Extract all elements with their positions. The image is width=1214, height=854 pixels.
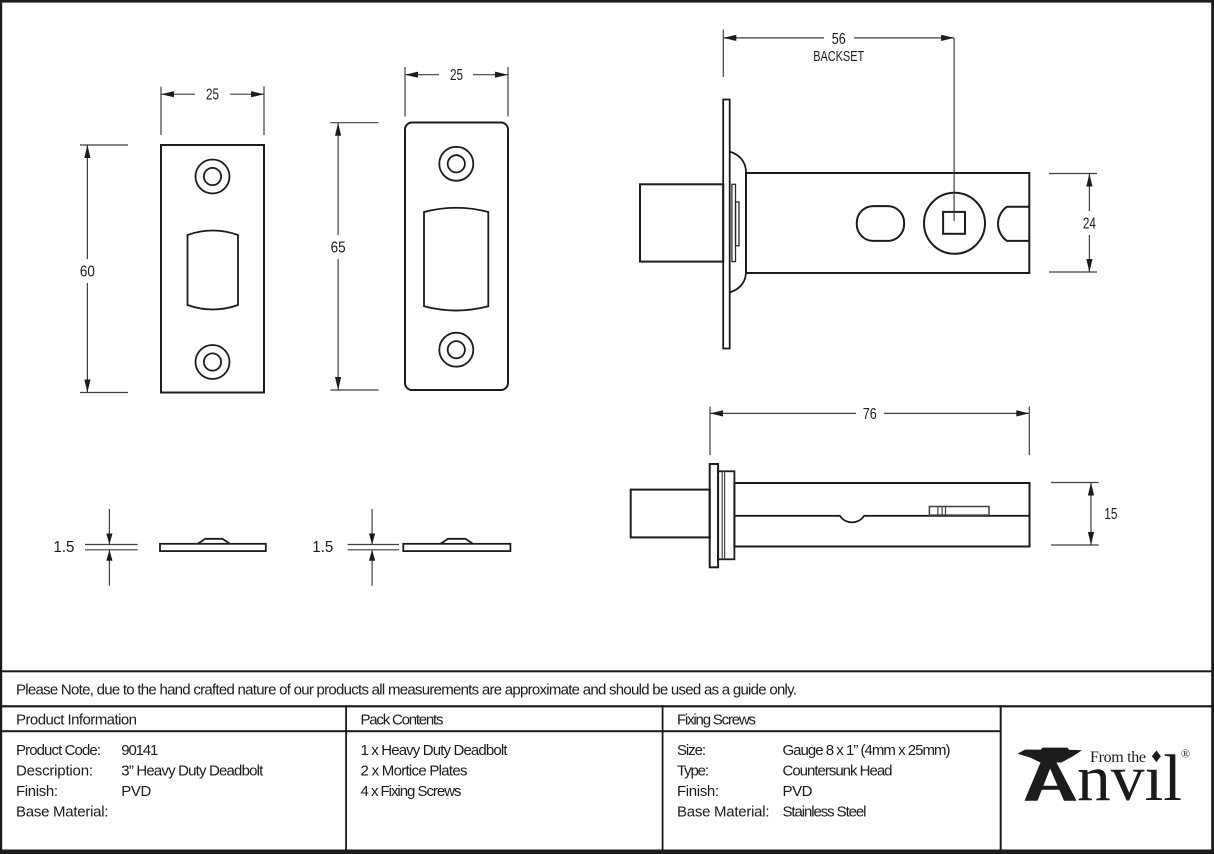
svg-text:25: 25 [206, 87, 219, 104]
svg-text:1.5: 1.5 [53, 539, 74, 556]
svg-text:1.5: 1.5 [312, 539, 333, 556]
svg-text:PVD: PVD [121, 783, 151, 800]
svg-text:Product Code:: Product Code: [16, 742, 101, 759]
svg-text:Fixing Screws: Fixing Screws [677, 712, 756, 729]
svg-text:Stainless Steel: Stainless Steel [783, 803, 867, 820]
svg-text:56: 56 [832, 31, 846, 48]
svg-text:BACKSET: BACKSET [813, 48, 864, 65]
svg-text:1 x Heavy Duty Deadbolt: 1 x Heavy Duty Deadbolt [361, 742, 509, 759]
svg-text:Base Material:: Base Material: [677, 803, 770, 820]
svg-text:4 x Fixing Screws: 4 x Fixing Screws [361, 783, 462, 800]
svg-text:90141: 90141 [121, 742, 158, 759]
svg-text:60: 60 [80, 263, 95, 280]
svg-text:15: 15 [1104, 506, 1117, 523]
svg-text:Base Material:: Base Material: [16, 803, 109, 820]
svg-text:3” Heavy Duty Deadbolt: 3” Heavy Duty Deadbolt [121, 763, 264, 780]
svg-text:2 x Mortice Plates: 2 x Mortice Plates [361, 763, 468, 780]
svg-text:Size:: Size: [677, 742, 706, 759]
svg-text:25: 25 [450, 67, 463, 84]
svg-text:Product Information: Product Information [16, 712, 137, 729]
svg-text:Pack Contents: Pack Contents [361, 712, 444, 729]
svg-text:Type:: Type: [677, 763, 709, 780]
svg-text:76: 76 [863, 406, 877, 423]
svg-text:Please Note, due to the hand c: Please Note, due to the hand crafted nat… [16, 682, 797, 699]
svg-text:nvıl: nvıl [1077, 742, 1182, 815]
svg-text:®: ® [1181, 747, 1190, 761]
svg-text:Description:: Description: [16, 763, 93, 780]
svg-text:Countersunk Head: Countersunk Head [783, 763, 893, 780]
svg-text:Finish:: Finish: [16, 783, 58, 800]
svg-text:PVD: PVD [783, 783, 813, 800]
svg-text:65: 65 [331, 239, 346, 256]
svg-text:Finish:: Finish: [677, 783, 719, 800]
svg-text:Gauge 8 x 1” (4mm x 25mm): Gauge 8 x 1” (4mm x 25mm) [783, 742, 951, 759]
svg-text:24: 24 [1083, 216, 1096, 233]
